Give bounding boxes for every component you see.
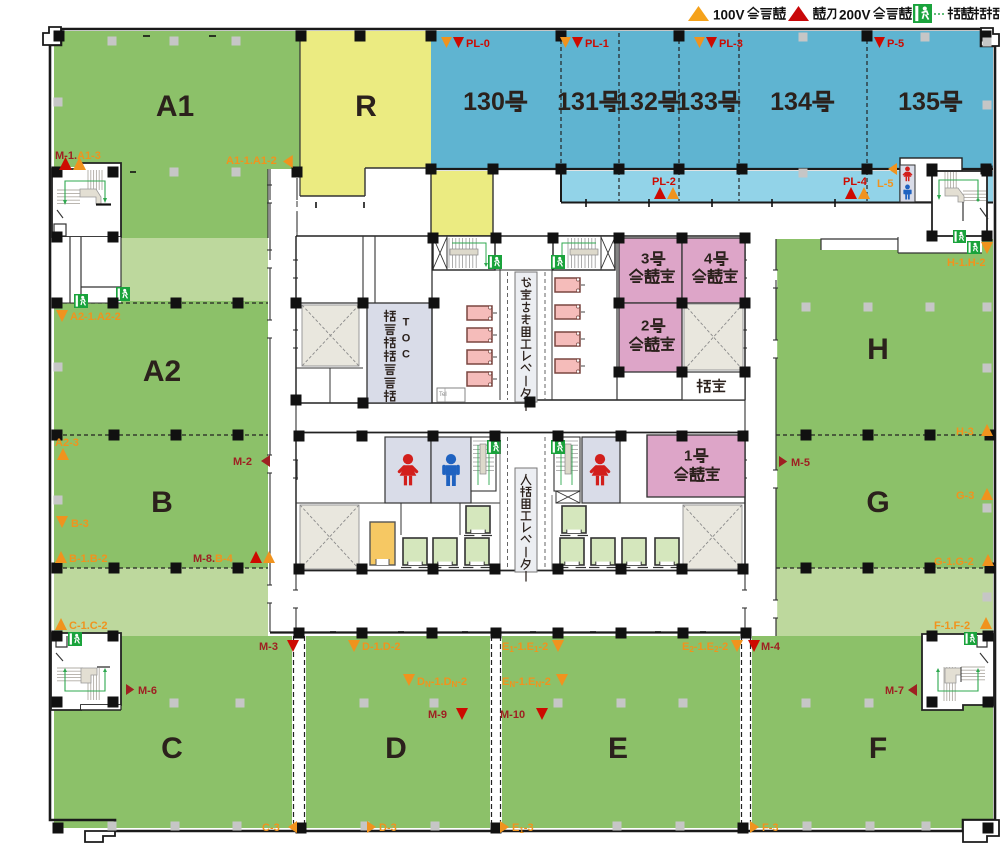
svg-text:133: 133 — [676, 88, 718, 116]
svg-text:A2: A2 — [143, 355, 181, 388]
svg-text:E: E — [608, 732, 628, 765]
svg-text:R: R — [355, 90, 377, 123]
svg-text:PL-3: PL-3 — [719, 38, 743, 50]
svg-text:E1-1.E1-2: E1-1.E1-2 — [502, 641, 548, 654]
svg-text:100V: 100V — [713, 8, 745, 23]
svg-text:H-3: H-3 — [956, 426, 974, 438]
svg-text:2: 2 — [641, 317, 649, 334]
svg-text:G-1.G-2: G-1.G-2 — [934, 556, 974, 568]
svg-text:C-1.C-2: C-1.C-2 — [69, 620, 108, 632]
svg-text:M-5: M-5 — [791, 457, 810, 469]
svg-text:PL-2: PL-2 — [652, 176, 676, 188]
svg-text:G-3: G-3 — [956, 490, 974, 502]
svg-text:1: 1 — [684, 447, 692, 464]
svg-text:D-3: D-3 — [379, 822, 397, 834]
svg-text:DN-1.DN-2: DN-1.DN-2 — [417, 676, 467, 689]
svg-text:F: F — [869, 732, 887, 765]
svg-text:A1: A1 — [156, 90, 194, 123]
svg-text:132: 132 — [616, 88, 658, 116]
svg-text:M-8.B-4: M-8.B-4 — [193, 553, 234, 565]
svg-text:D-1.D-2: D-1.D-2 — [362, 641, 401, 653]
svg-text:A1-1.A1-2: A1-1.A1-2 — [226, 155, 277, 167]
svg-text:G: G — [866, 486, 889, 519]
svg-text:M-10: M-10 — [500, 709, 525, 721]
svg-text:A2-3: A2-3 — [55, 437, 79, 449]
svg-text:4: 4 — [704, 250, 713, 267]
svg-text:130: 130 — [463, 88, 505, 116]
svg-text:PL-1: PL-1 — [585, 38, 609, 50]
svg-text:B: B — [151, 486, 173, 519]
svg-text:O: O — [402, 332, 411, 344]
svg-text:EN-1.EN-2: EN-1.EN-2 — [502, 676, 551, 689]
svg-text:135: 135 — [898, 88, 940, 116]
svg-text:C: C — [402, 348, 410, 360]
svg-text:B-3: B-3 — [71, 518, 89, 530]
svg-text:PL-0: PL-0 — [466, 38, 490, 50]
svg-text:H-1.H-2: H-1.H-2 — [947, 257, 986, 269]
svg-text:PL-4: PL-4 — [843, 176, 868, 188]
svg-text:131: 131 — [557, 88, 599, 116]
svg-text:F-1.F-2: F-1.F-2 — [934, 620, 970, 632]
svg-text:M-9: M-9 — [428, 709, 447, 721]
svg-text:P-5: P-5 — [887, 38, 904, 50]
svg-text:T: T — [403, 316, 410, 328]
svg-text:D: D — [385, 732, 407, 765]
svg-text:M-7: M-7 — [885, 685, 904, 697]
svg-text:M-3: M-3 — [259, 641, 278, 653]
svg-text:H: H — [867, 333, 889, 366]
svg-text:C-3: C-3 — [262, 822, 280, 834]
svg-text:134: 134 — [770, 88, 812, 116]
svg-text:E2-1.E2-2: E2-1.E2-2 — [682, 641, 728, 654]
svg-text:M-2: M-2 — [233, 456, 252, 468]
svg-text:M-6: M-6 — [138, 685, 157, 697]
svg-text:3: 3 — [641, 250, 649, 267]
svg-text:A2-1.A2-2: A2-1.A2-2 — [70, 311, 121, 323]
svg-text:L-5: L-5 — [877, 178, 894, 190]
svg-text:M-4: M-4 — [761, 641, 781, 653]
svg-text:Tel: Tel — [439, 392, 447, 398]
svg-text:B-1.B-2: B-1.B-2 — [69, 553, 108, 565]
svg-text:C: C — [161, 732, 183, 765]
svg-text:F-3: F-3 — [762, 822, 779, 834]
svg-text:200V: 200V — [839, 8, 871, 23]
